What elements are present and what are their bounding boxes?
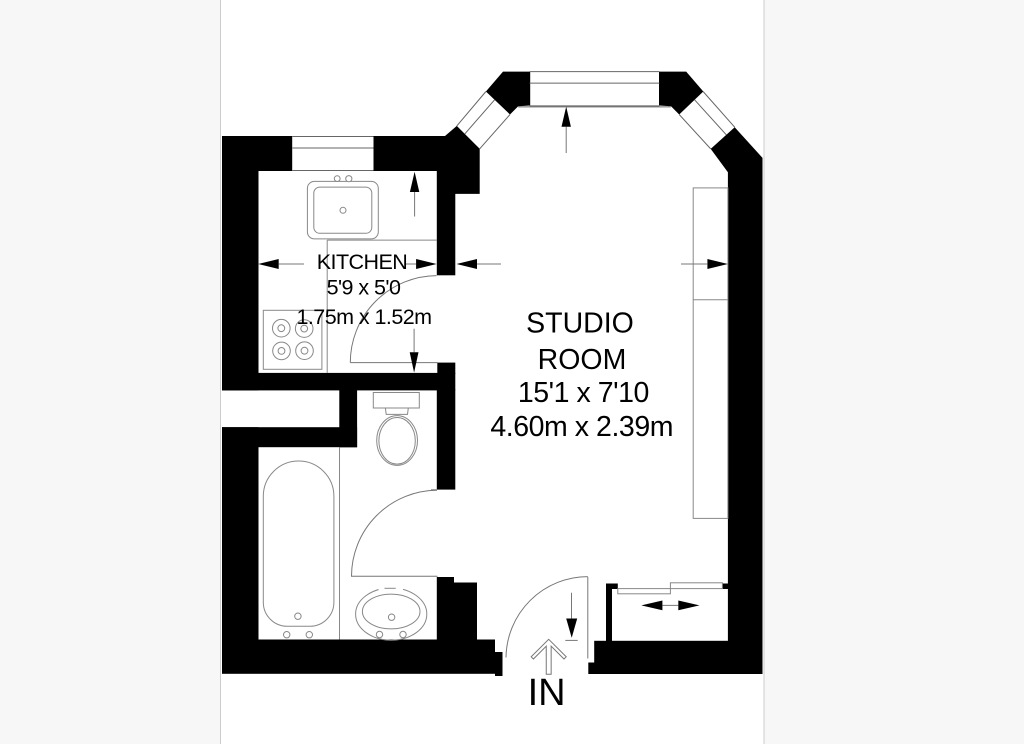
svg-text:ROOM: ROOM (538, 344, 627, 376)
svg-text:15'1 x 7'10: 15'1 x 7'10 (518, 377, 649, 409)
svg-text:5'9 x 5'0: 5'9 x 5'0 (327, 276, 401, 300)
svg-text:IN: IN (528, 672, 566, 714)
svg-text:STUDIO: STUDIO (526, 307, 634, 339)
svg-text:4.60m x 2.39m: 4.60m x 2.39m (490, 411, 673, 443)
svg-text:KITCHEN: KITCHEN (317, 250, 408, 274)
svg-text:1.75m x 1.52m: 1.75m x 1.52m (296, 305, 431, 329)
